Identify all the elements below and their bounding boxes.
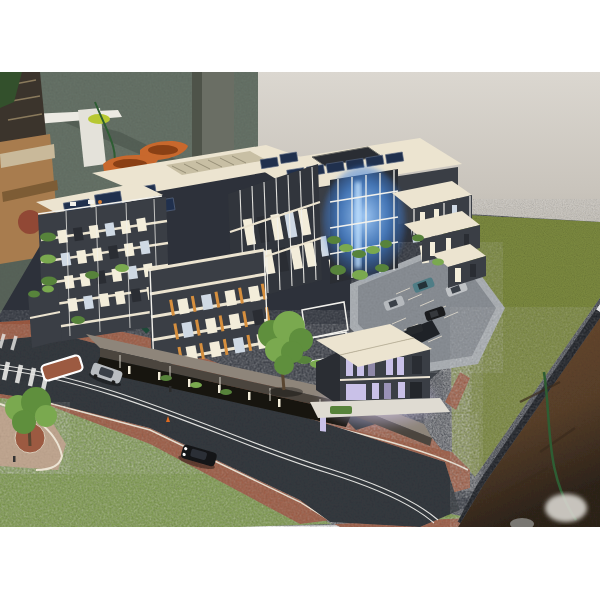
atrium bbox=[322, 166, 406, 284]
pedestrian-figure-2 bbox=[169, 386, 172, 392]
left-tower bbox=[28, 183, 170, 348]
pedestrian-figure bbox=[13, 456, 16, 462]
white-object-corner bbox=[545, 494, 587, 522]
photo-frame bbox=[0, 0, 600, 600]
scene bbox=[0, 72, 600, 527]
model-photograph bbox=[0, 72, 600, 527]
yellow-object bbox=[88, 114, 110, 124]
pavilion-hedge bbox=[330, 406, 352, 414]
terrace-furniture bbox=[98, 200, 102, 204]
